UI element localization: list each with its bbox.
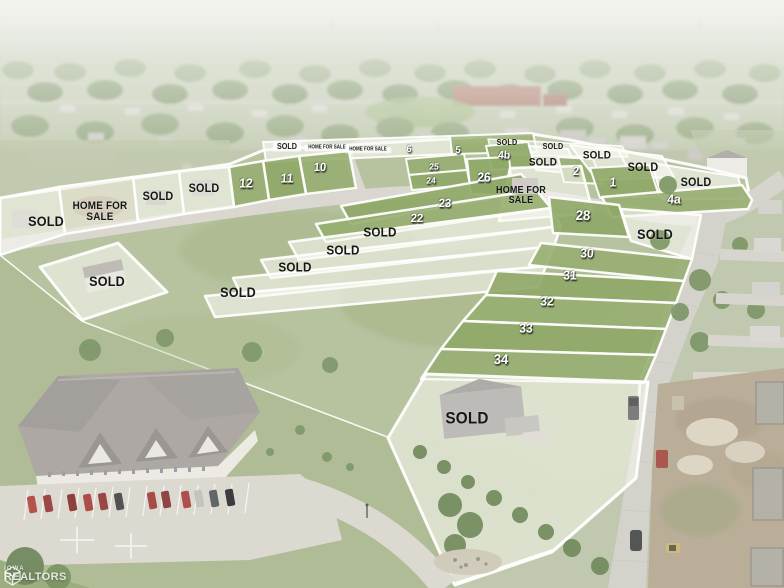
realtors-logo-icon	[4, 566, 21, 586]
brand-watermark: IOWA REALTORS	[4, 566, 67, 583]
aerial-photo-background	[0, 0, 784, 588]
photo-haze-overlay	[0, 0, 784, 588]
aerial-lot-map: SOLDHOME FOR SALEHOME FOR SALE65SOLDSOLD…	[0, 0, 784, 588]
